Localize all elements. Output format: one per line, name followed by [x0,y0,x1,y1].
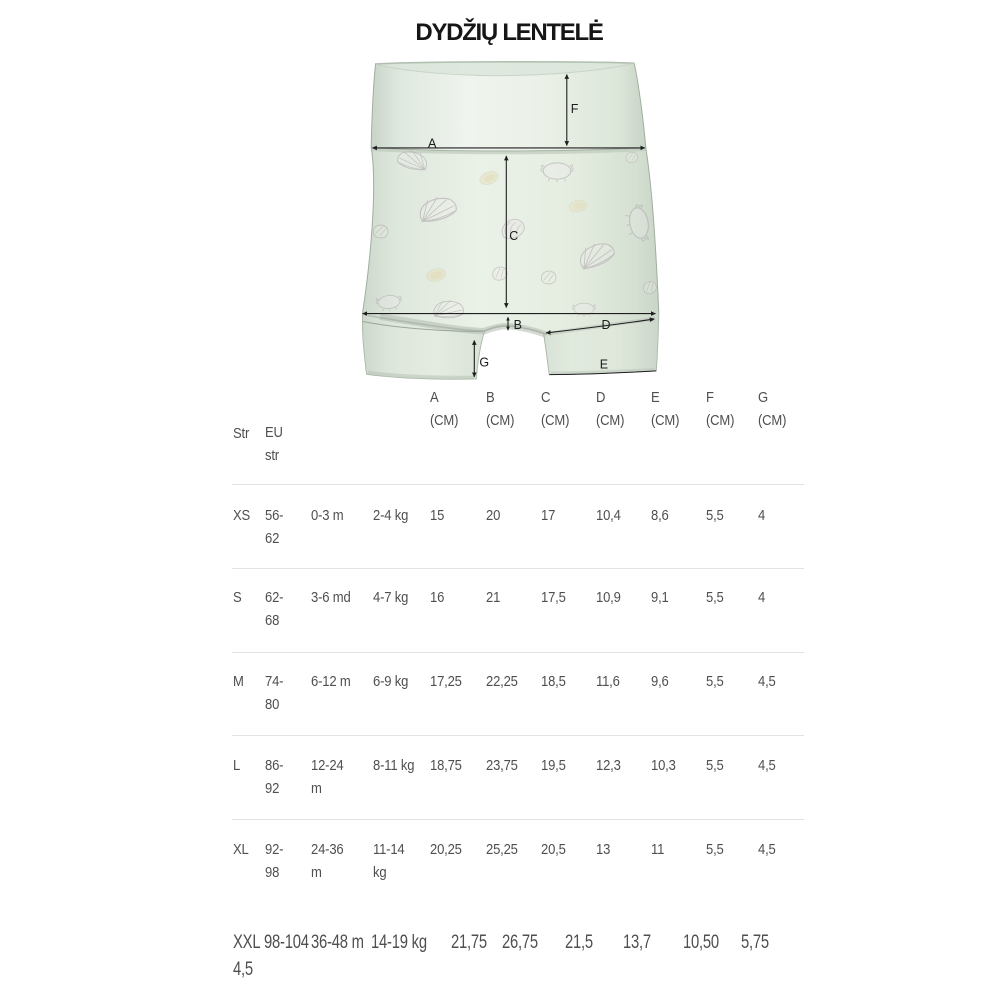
svg-text:A: A [428,137,437,151]
svg-text:F: F [571,102,579,116]
svg-text:D: D [602,318,611,332]
svg-text:E: E [600,358,608,372]
svg-text:C: C [509,229,518,243]
svg-text:G: G [479,356,489,370]
svg-text:B: B [514,318,522,332]
